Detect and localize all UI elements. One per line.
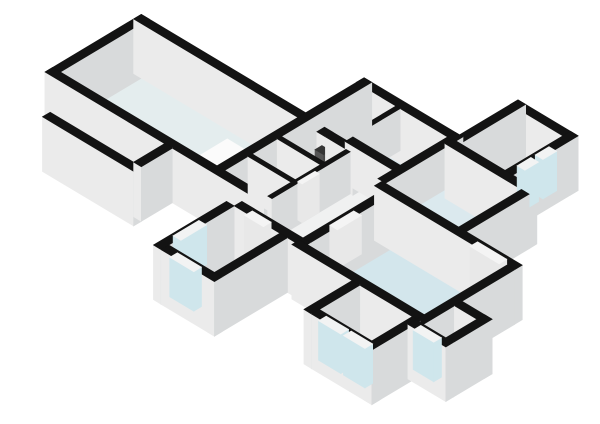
floorplan-3d-view — [0, 0, 600, 424]
wall-southroom-nw-face-sw — [304, 309, 312, 368]
wall-bigbedroom-ne-face-se — [515, 265, 523, 324]
wall-alcove-sw-face-se — [446, 342, 454, 401]
window-swroom-sw-face-se — [194, 267, 202, 311]
window-southroom-b-face-se — [365, 344, 373, 388]
wall-westrooms-se-face-sw — [134, 162, 142, 221]
door-closet-hall-face-sw — [298, 181, 302, 222]
wall-swroom-sw-face-se — [214, 277, 222, 336]
window-alcove-door-face-se — [434, 338, 442, 382]
wall-swroom-nw-face-sw — [153, 245, 161, 304]
floorplan-page — [0, 0, 600, 424]
